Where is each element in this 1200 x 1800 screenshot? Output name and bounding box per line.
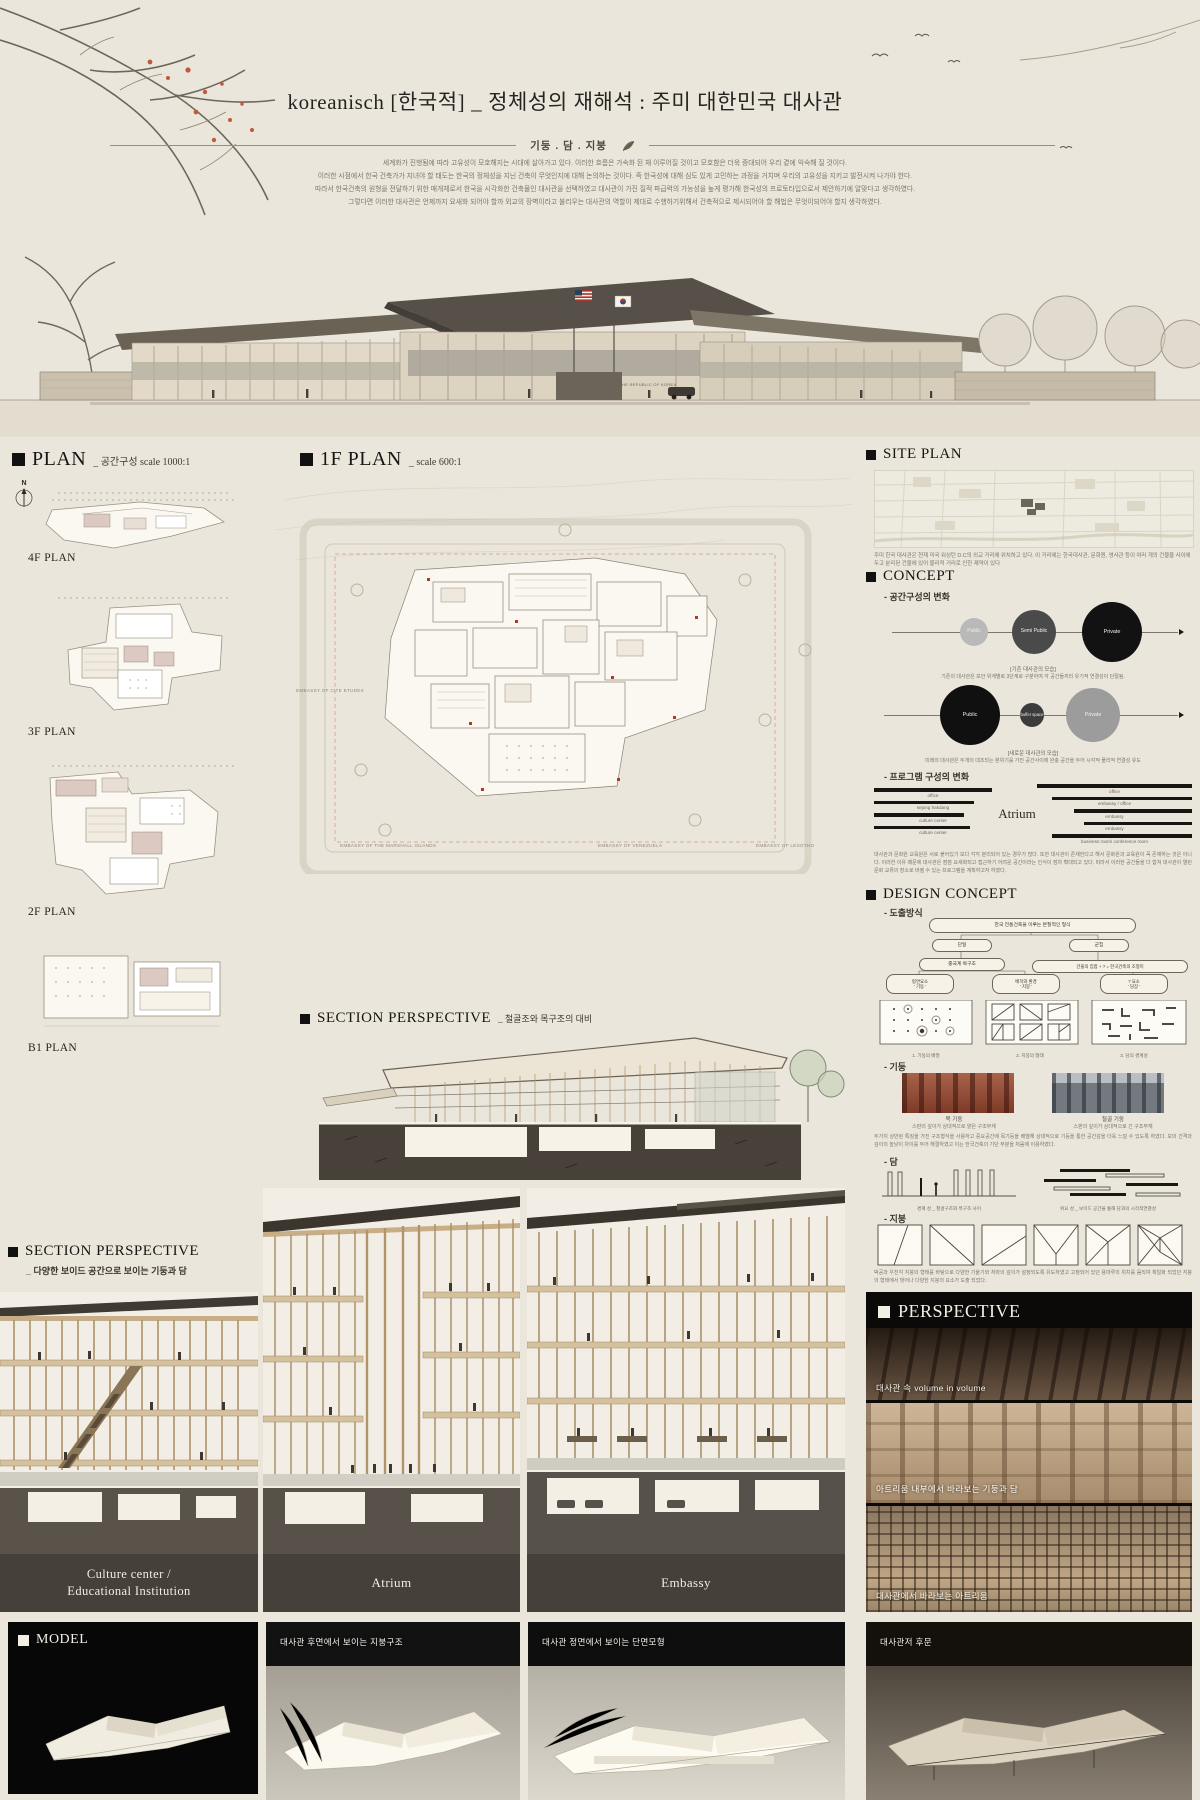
plan-title: PLAN: [32, 448, 86, 471]
embassy-rendering: EMBASSY OF THE REPUBLIC OF KOREA: [0, 222, 1200, 437]
flow-left-child: 중국계 목구조: [919, 958, 1005, 971]
plan-section-header: PLAN _ 공간구성 scale 1000:1: [12, 448, 190, 471]
concept-diagram-old: Public Semi Public Private: [874, 602, 1192, 662]
first-floor-title: 1F PLAN: [320, 448, 402, 471]
panel-label-band: Embassy: [527, 1554, 845, 1612]
section-bullet: [12, 453, 25, 466]
flow-leaf: 배치와 환경 ' 지붕 ': [992, 974, 1060, 994]
design-concept-title: DESIGN CONCEPT: [883, 886, 1017, 903]
north-label: N: [14, 480, 34, 487]
pillar-caption: 목 기둥: [874, 1115, 1034, 1123]
keywords-label: 기둥 . 담 . 지붕: [530, 138, 607, 153]
first-floor-plan-drawing: [265, 470, 855, 879]
leaf-icon: [621, 140, 635, 152]
context-label-bottom: EMBASSY OF LESOTHO: [756, 843, 814, 848]
section-mid-drawing: [265, 1028, 855, 1191]
program-label: culture center: [874, 818, 992, 823]
context-label-bottom: EMBASSY OF VENEZUELA: [598, 843, 662, 848]
circle-semipublic: Semi Public: [1012, 610, 1056, 654]
plan-floor-label: 3F PLAN: [28, 726, 76, 738]
perspective-caption: 아트리움 내부에서 바라보는 기둥과 담: [876, 1483, 1018, 1495]
concept-old-caption: [기존 대사관의 모습]: [874, 665, 1192, 673]
plan-2f-thumbnail: [22, 760, 247, 909]
section-bottom-subtitle: _ 다양한 보이드 공간으로 보이는 기둥과 담: [26, 1264, 187, 1277]
program-label: culture center: [874, 830, 992, 835]
wall-diagrams: 경계 성 _ 철골구조와 목구조 사이 위요 성 _ 보이드 공간을 통해 담과…: [874, 1166, 1192, 1212]
section-bullet: [866, 450, 876, 460]
circle-private2: Private: [1066, 688, 1120, 742]
program-label: business room/ conference room: [1037, 839, 1192, 844]
panel-label-band: Culture center / Educational Institution: [0, 1554, 258, 1612]
site-plan-header: SITE PLAN: [866, 446, 962, 463]
flow-right-child: 건물의 집합 + ? = 한국건축의 조형미: [1032, 960, 1188, 973]
perspective-title: PERSPECTIVE: [898, 1301, 1021, 1322]
wood-pillar-photo: [902, 1073, 1014, 1113]
pillar-note: 두가지 상반된 특징을 가진 구조형식을 사용하고 중요공간에 목기둥을 배열해…: [874, 1134, 1192, 1150]
program-label: office: [1037, 789, 1192, 794]
roof-diagrams: [874, 1224, 1192, 1273]
pattern-caption: 1. 기둥의 배열: [874, 1053, 978, 1059]
perspective-photo-2: 아트리움 내부에서 바라보는 기둥과 담: [866, 1403, 1192, 1503]
model-section: MODEL: [8, 1622, 258, 1794]
model-photo-backgate: 대사관저 후문: [866, 1622, 1192, 1800]
program-label: embassy: [1037, 826, 1192, 831]
first-floor-header: 1F PLAN _ scale 600:1: [300, 448, 462, 471]
site-plan-map: [874, 470, 1194, 548]
building-sign: EMBASSY OF THE REPUBLIC OF KOREA: [589, 382, 677, 387]
model-photo-main: [28, 1666, 238, 1786]
design-concept-header: DESIGN CONCEPT: [866, 886, 1017, 903]
perspective-caption: 대사관에서 바라보는 아트리움: [876, 1590, 988, 1602]
section-bullet: [866, 890, 876, 900]
section-bullet: [300, 453, 313, 466]
model-caption: 대사관 후면에서 보이는 지붕구조: [280, 1636, 403, 1648]
circle-public: Public: [960, 618, 988, 646]
intro-line: 그렇다면 이러한 대사관은 언제까지 요새화 되어야 할까 외교의 장벽이라고 …: [130, 197, 1100, 210]
intro-line: 이러한 시점에서 한국 건축가가 지녀야 할 태도는 한국의 정체성을 지닌 건…: [130, 171, 1100, 184]
perspective-caption: 대사관 속 volume in volume: [876, 1382, 986, 1394]
intro-line: 따라서 한국건축의 원형을 전달하기 위한 매개체로서 한국을 시각화한 건축물…: [130, 184, 1100, 197]
perspective-section: PERSPECTIVE 대사관 속 volume in volume 아트리움 …: [866, 1292, 1192, 1612]
site-plan-title: SITE PLAN: [883, 446, 962, 463]
divider-line: [649, 145, 1055, 146]
section-panel-culture: Culture center / Educational Institution: [0, 1292, 258, 1612]
panel-label: Atrium: [372, 1574, 412, 1592]
program-label: office: [874, 793, 992, 798]
first-floor-subtitle: _ scale 600:1: [409, 457, 462, 468]
concept-new-note: 미래의 대사관은 두개의 대조되는 분위기를 가진 공간사이에 완충 공간을 두…: [874, 758, 1192, 766]
intro-line: 세계화가 진행됨에 따라 고유성이 모호해지는 시대에 살아가고 있다. 이러한…: [130, 158, 1100, 171]
circle-private: Private: [1082, 602, 1142, 662]
flow-left: 단일: [932, 939, 992, 952]
pillar-lines: 스판의 깊이가 상대적으로 얕은 구조부재 스판의 깊이가 상대적으로 긴 구조…: [874, 1124, 1192, 1132]
section-mid-subtitle: _ 철골조와 목구조의 대비: [498, 1012, 592, 1025]
circle-buffer: buffer space: [1020, 703, 1044, 727]
section-mid-title: SECTION PERSPECTIVE: [317, 1010, 491, 1027]
section-bullet: [866, 572, 876, 582]
panel-label-band: Atrium: [263, 1554, 520, 1612]
page-title: koreanisch [한국적] _ 정체성의 재해석 : 주미 대한민국 대사…: [70, 86, 1060, 116]
program-note: 대사관과 문화원 교육원은 서로 붙어있기 보다 각각 분리되어 있는 경우가 …: [874, 852, 1192, 875]
model-caption: 대사관저 후문: [880, 1636, 932, 1648]
concept-sub2: - 프로그램 구성의 변화: [884, 770, 969, 783]
pattern-caption: 2. 지붕의 형태: [978, 1053, 1082, 1059]
panel-label: Embassy: [661, 1574, 711, 1592]
flow-right: 군집: [1069, 939, 1129, 952]
roof-note: 박공과 우진각 지붕의 형태를 바탕으로 다양한 기울기와 처마의 깊이가 설정…: [874, 1270, 1192, 1286]
intro-paragraph: 세계화가 진행됨에 따라 고유성이 모호해지는 시대에 살아가고 있다. 이러한…: [130, 158, 1100, 210]
plan-3f-thumbnail: [22, 592, 247, 729]
section-bullet: [878, 1306, 890, 1318]
circle-public2: Public: [940, 685, 1000, 745]
program-label: embassy: [1037, 814, 1192, 819]
plan-floor-label: B1 PLAN: [28, 1042, 77, 1054]
pillar-caption: 철골 기둥: [1034, 1115, 1192, 1123]
pillar-captions: 목 기둥 철골 기둥: [874, 1115, 1192, 1123]
wall-caption: 위요 성 _ 보이드 공간을 통해 담과의 시각적연결성: [1024, 1206, 1192, 1212]
section-bottom-title: SECTION PERSPECTIVE: [25, 1243, 199, 1260]
concept-diagram-new: Public buffer space Private: [874, 684, 1192, 746]
concept-old-note: 기존의 대사관은 보안 위계별로 3단계로 구분하여 각 공간들끼리 유기적 연…: [874, 674, 1192, 682]
model-photo-roofback: 대사관 후면에서 보이는 지붕구조: [266, 1622, 520, 1800]
concept-title: CONCEPT: [883, 568, 955, 585]
section-bullet: [18, 1635, 29, 1646]
pillar-line: 스판의 깊이가 상대적으로 얕은 구조부재: [874, 1124, 1034, 1132]
concept-header: CONCEPT: [866, 568, 955, 585]
program-center-label: Atrium: [992, 806, 1042, 822]
pillar-photos: [874, 1073, 1192, 1113]
section-bullet: [8, 1247, 18, 1257]
presentation-board: koreanisch [한국적] _ 정체성의 재해석 : 주미 대한민국 대사…: [0, 0, 1200, 1800]
program-diagram: office sejong hakdang culture center cul…: [874, 784, 1192, 848]
program-label: sejong hakdang: [874, 805, 992, 810]
program-label: embassy / office: [1037, 801, 1192, 806]
steel-pillar-photo: [1052, 1073, 1164, 1113]
flow-leaf: 평면요소 ' 기둥 ': [886, 974, 954, 994]
flow-leaf: ? 요소 ' 담장 ': [1100, 974, 1168, 994]
pattern-diagrams: 1. 기둥의 배열 2. 지붕의 형태 3. 담의 경계성: [874, 1000, 1192, 1059]
plan-subtitle: _ 공간구성 scale 1000:1: [93, 453, 190, 468]
pillar-sub: - 기둥: [884, 1060, 906, 1073]
context-label-left: EMBASSY OF CITE ETUDES: [296, 688, 364, 693]
pillar-line: 스판의 깊이가 상대적으로 긴 구조부재: [1034, 1124, 1192, 1132]
section-mid-header: SECTION PERSPECTIVE _ 철골조와 목구조의 대비: [300, 1010, 592, 1027]
flow-root: 한국 전통건축을 이루는 본질적인 형식: [929, 918, 1136, 933]
concept-new-caption: [새로운 대사관의 모습]: [874, 749, 1192, 757]
plan-floor-label: 4F PLAN: [28, 552, 76, 564]
perspective-photo-1: 대사관 속 volume in volume: [866, 1328, 1192, 1400]
plan-b1-thumbnail: [30, 946, 242, 1045]
section-panel-embassy: Embassy: [527, 1188, 845, 1612]
pattern-caption: 3. 담의 경계성: [1082, 1053, 1186, 1059]
model-title: MODEL: [36, 1632, 88, 1648]
model-caption: 대사관 정면에서 보이는 단면모형: [542, 1636, 665, 1648]
section-bullet: [300, 1014, 310, 1024]
plan-floor-label: 2F PLAN: [28, 906, 76, 918]
section-panel-atrium: Atrium: [263, 1188, 520, 1612]
model-photo-front: 대사관 정면에서 보이는 단면모형: [528, 1622, 845, 1800]
panel-label: Culture center / Educational Institution: [67, 1566, 190, 1601]
divider-line: [110, 145, 516, 146]
derivation-flowchart: 한국 전통건축을 이루는 본질적인 형식 단일 군집 중국계 목구조 건물의 집…: [874, 918, 1192, 996]
section-bottom-header: SECTION PERSPECTIVE: [8, 1243, 199, 1260]
perspective-photo-3: 대사관에서 바라보는 아트리움: [866, 1506, 1192, 1612]
site-plan-description: 주미 한국 대사관은 현재 미국 워싱턴 D.C의 외교 거리에 위치하고 있다…: [874, 552, 1192, 569]
keywords-divider: 기둥 . 담 . 지붕: [110, 138, 1055, 153]
plan-4f-thumbnail: [22, 488, 247, 559]
context-label-bottom: EMBASSY OF THE MARSHALL ISLANDS: [340, 843, 436, 848]
